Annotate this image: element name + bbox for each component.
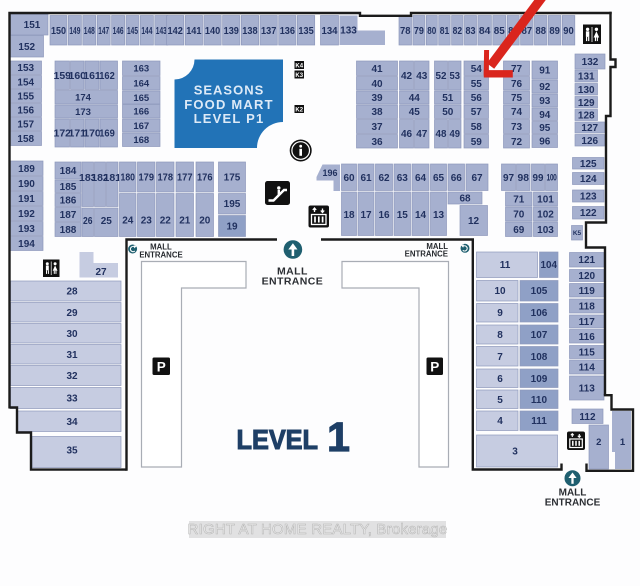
svg-text:91: 91 [539,66,551,77]
svg-text:53: 53 [450,71,461,82]
svg-text:P: P [430,360,439,375]
svg-text:5: 5 [497,395,503,406]
svg-text:ENTRANCE: ENTRANCE [139,250,182,259]
svg-text:103: 103 [537,225,554,236]
svg-text:150: 150 [51,26,66,37]
svg-text:178: 178 [158,173,174,184]
svg-text:99: 99 [533,173,544,184]
svg-text:168: 168 [133,135,149,146]
svg-text:167: 167 [133,121,149,132]
svg-text:89: 89 [549,26,560,37]
svg-text:57: 57 [471,107,483,118]
svg-text:44: 44 [409,93,421,104]
svg-text:61: 61 [360,173,372,184]
svg-text:40: 40 [371,79,383,90]
svg-text:93: 93 [539,96,551,107]
svg-text:193: 193 [18,224,35,235]
svg-text:147: 147 [98,26,109,37]
svg-text:195: 195 [224,199,241,210]
svg-text:41: 41 [371,64,383,75]
svg-text:9: 9 [497,308,503,319]
svg-text:1: 1 [327,414,350,460]
svg-text:185: 185 [60,182,77,193]
svg-text:66: 66 [451,173,463,184]
svg-text:104: 104 [541,260,558,271]
svg-text:71: 71 [513,195,525,206]
svg-text:100: 100 [547,173,557,184]
svg-text:39: 39 [371,93,383,104]
svg-text:70: 70 [513,210,525,221]
svg-text:96: 96 [539,137,551,148]
svg-text:90: 90 [563,26,574,37]
svg-text:119: 119 [579,286,596,297]
svg-text:28: 28 [66,287,78,298]
svg-text:16: 16 [378,210,390,221]
svg-text:3: 3 [512,447,518,458]
svg-text:4: 4 [497,416,503,427]
svg-text:145: 145 [127,26,138,37]
svg-text:105: 105 [531,286,548,297]
svg-text:K4: K4 [295,63,303,69]
svg-text:38: 38 [371,107,383,118]
svg-text:124: 124 [580,174,597,185]
svg-text:190: 190 [18,179,35,190]
svg-text:18: 18 [343,210,355,221]
svg-text:73: 73 [511,122,523,133]
svg-text:123: 123 [580,192,597,203]
svg-text:128: 128 [578,111,595,122]
svg-text:6: 6 [497,374,503,385]
svg-text:194: 194 [18,239,35,250]
svg-text:81: 81 [440,26,450,37]
svg-text:ENTRANCE: ENTRANCE [262,276,324,288]
svg-text:148: 148 [84,26,95,37]
svg-text:13: 13 [433,210,445,221]
svg-text:K2: K2 [295,107,303,113]
svg-text:19: 19 [226,222,238,233]
svg-text:106: 106 [531,308,548,319]
svg-text:80: 80 [427,26,436,37]
svg-text:68: 68 [459,194,471,205]
svg-text:1: 1 [620,437,626,448]
svg-text:122: 122 [580,208,597,219]
svg-text:92: 92 [539,82,551,93]
svg-text:59: 59 [471,137,483,148]
svg-text:72: 72 [511,137,523,148]
svg-text:143: 143 [156,26,167,37]
svg-text:47: 47 [416,129,428,140]
svg-text:137: 137 [261,26,277,37]
svg-text:17: 17 [360,210,372,221]
svg-text:79: 79 [414,26,424,37]
svg-text:64: 64 [415,173,427,184]
svg-text:7: 7 [497,352,503,363]
svg-text:52: 52 [436,71,447,82]
svg-text:95: 95 [539,123,551,134]
svg-text:131: 131 [578,72,595,83]
svg-text:134: 134 [322,26,338,37]
svg-text:12: 12 [468,216,480,227]
svg-text:FOOD MART: FOOD MART [184,97,274,112]
svg-text:ENTRANCE: ENTRANCE [545,498,601,509]
svg-text:127: 127 [581,123,598,134]
svg-text:173: 173 [75,107,91,118]
svg-text:154: 154 [17,78,34,89]
svg-text:P: P [157,360,166,375]
svg-text:10: 10 [494,286,506,297]
svg-text:140: 140 [205,26,221,37]
svg-text:35: 35 [66,446,78,457]
svg-text:196: 196 [322,168,337,178]
svg-text:15: 15 [397,210,409,221]
svg-text:33: 33 [66,394,78,405]
svg-text:LEVEL P1: LEVEL P1 [194,111,265,126]
svg-text:180: 180 [121,173,136,184]
svg-text:88: 88 [536,26,547,37]
svg-text:125: 125 [580,159,597,170]
svg-text:170: 170 [83,128,101,140]
svg-text:63: 63 [397,173,409,184]
svg-text:60: 60 [343,173,355,184]
svg-text:155: 155 [17,92,34,103]
svg-text:85: 85 [494,26,505,37]
svg-text:174: 174 [75,93,92,104]
svg-text:94: 94 [539,110,551,121]
svg-text:32: 32 [66,371,78,382]
svg-text:55: 55 [471,79,483,90]
svg-text:130: 130 [578,85,595,96]
svg-text:RIGHT AT HOME REALTY, Brokerag: RIGHT AT HOME REALTY, Brokerage [188,521,448,538]
svg-text:112: 112 [579,412,596,423]
svg-text:111: 111 [531,416,547,427]
svg-text:113: 113 [579,384,596,395]
svg-text:50: 50 [442,107,454,118]
svg-text:156: 156 [17,106,34,117]
svg-text:8: 8 [497,330,503,341]
svg-text:138: 138 [242,26,258,37]
svg-text:151: 151 [24,20,41,31]
svg-text:136: 136 [280,26,296,37]
svg-text:27: 27 [95,267,107,278]
svg-text:24: 24 [122,216,134,227]
svg-text:58: 58 [471,122,483,133]
svg-text:175: 175 [224,173,241,184]
svg-text:191: 191 [18,194,35,205]
svg-text:48: 48 [436,129,447,140]
svg-text:184: 184 [60,166,77,177]
svg-text:2: 2 [596,437,601,448]
svg-text:152: 152 [18,42,35,53]
svg-text:34: 34 [66,417,78,428]
svg-text:46: 46 [401,129,413,140]
svg-text:45: 45 [409,107,421,118]
svg-text:169: 169 [99,128,115,140]
svg-text:110: 110 [531,395,548,406]
svg-text:20: 20 [199,216,211,227]
svg-text:187: 187 [60,210,77,221]
svg-text:98: 98 [518,173,530,184]
svg-text:56: 56 [471,93,483,104]
svg-text:36: 36 [371,137,383,148]
svg-text:146: 146 [113,26,124,37]
svg-text:30: 30 [66,329,78,340]
svg-text:42: 42 [401,71,413,82]
svg-text:62: 62 [378,173,390,184]
svg-text:75: 75 [511,93,523,104]
svg-text:115: 115 [579,348,596,359]
svg-text:117: 117 [579,317,596,328]
svg-text:K5: K5 [573,230,582,237]
svg-text:82: 82 [453,26,463,37]
svg-text:83: 83 [466,26,476,37]
svg-text:97: 97 [503,173,515,184]
svg-text:31: 31 [66,350,78,361]
svg-text:67: 67 [471,173,483,184]
svg-text:133: 133 [340,26,357,37]
svg-text:69: 69 [513,225,525,236]
svg-text:161: 161 [83,70,101,82]
svg-text:108: 108 [531,352,548,363]
svg-text:153: 153 [17,63,34,74]
svg-text:74: 74 [511,107,523,118]
svg-text:149: 149 [69,26,80,37]
svg-text:144: 144 [141,26,152,37]
svg-text:177: 177 [177,173,193,184]
svg-text:78: 78 [400,26,411,37]
svg-text:176: 176 [197,173,213,184]
svg-text:126: 126 [581,136,598,147]
svg-text:102: 102 [537,210,554,221]
svg-text:LEVEL: LEVEL [237,424,319,455]
svg-text:135: 135 [298,26,314,37]
svg-text:164: 164 [133,79,150,90]
svg-text:SEASONS: SEASONS [194,83,265,98]
svg-text:84: 84 [479,26,491,37]
svg-text:101: 101 [537,195,554,206]
svg-text:179: 179 [139,173,155,184]
svg-text:188: 188 [60,225,77,236]
svg-text:ENTRANCE: ENTRANCE [405,250,448,259]
svg-text:29: 29 [66,308,78,319]
svg-text:192: 192 [18,209,35,220]
svg-text:166: 166 [133,107,149,118]
svg-text:114: 114 [579,363,596,374]
svg-text:163: 163 [133,64,149,75]
svg-text:181: 181 [103,172,121,184]
svg-text:186: 186 [60,196,77,207]
svg-text:158: 158 [17,134,34,145]
svg-text:109: 109 [531,374,548,385]
svg-text:49: 49 [450,129,461,140]
svg-text:141: 141 [186,26,202,37]
svg-text:54: 54 [471,64,483,75]
svg-text:21: 21 [179,216,191,227]
svg-text:23: 23 [141,216,153,227]
svg-text:43: 43 [416,71,428,82]
svg-text:51: 51 [442,93,454,104]
svg-text:26: 26 [83,216,93,227]
svg-text:162: 162 [99,70,115,82]
svg-text:K3: K3 [295,73,303,79]
svg-text:118: 118 [579,302,596,313]
svg-text:116: 116 [579,332,596,343]
svg-text:142: 142 [168,26,184,37]
svg-text:65: 65 [433,173,445,184]
svg-text:120: 120 [578,271,595,282]
svg-text:132: 132 [582,57,599,68]
svg-text:139: 139 [224,26,240,37]
svg-text:11: 11 [500,260,511,271]
svg-text:121: 121 [578,255,595,266]
svg-text:165: 165 [133,93,150,104]
svg-text:157: 157 [17,120,34,131]
svg-text:189: 189 [18,164,35,175]
svg-text:129: 129 [578,98,595,109]
svg-text:22: 22 [160,216,172,227]
svg-text:14: 14 [415,210,427,221]
svg-text:76: 76 [511,79,523,90]
svg-text:107: 107 [531,330,548,341]
svg-text:25: 25 [101,216,113,227]
svg-text:37: 37 [371,122,383,133]
